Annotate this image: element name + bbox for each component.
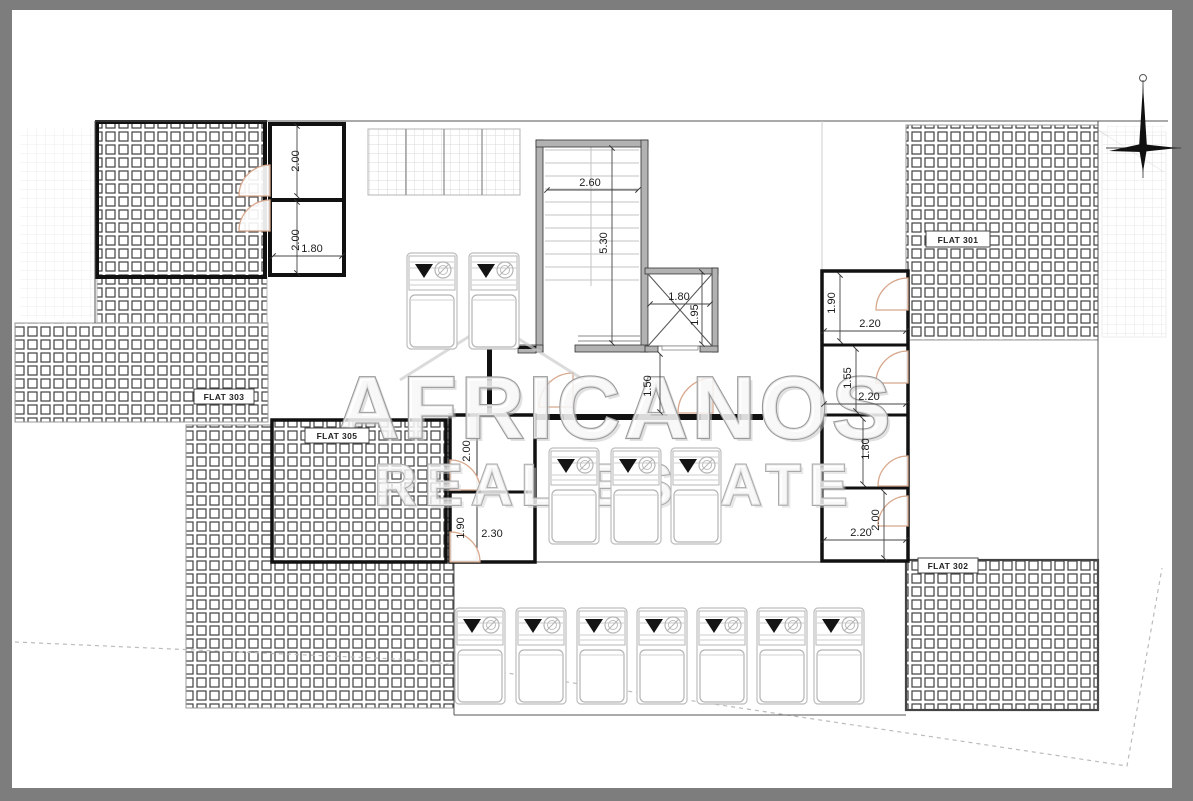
flat-302-label: FLAT 302	[928, 561, 969, 571]
dimension-text: 2.00	[290, 150, 302, 171]
dimension-text: 1.90	[455, 517, 467, 538]
dimension-text: 2.00	[290, 229, 302, 250]
dimension-text: 1.80	[860, 438, 872, 459]
dimension-text: 2.00	[461, 440, 473, 461]
dimension-text: 1.95	[689, 304, 701, 325]
dimension-text: 1.80	[668, 291, 689, 303]
lift-door	[662, 346, 698, 350]
dimension-text: 2.30	[481, 528, 502, 540]
watermark-line1: AFRICANOS	[335, 358, 894, 457]
dimension-text: 1.55	[842, 367, 854, 388]
lift-shaft	[645, 268, 718, 352]
dimension-text: 1.50	[642, 375, 654, 396]
flat-303-label: FLAT 303	[204, 392, 245, 402]
dimension-text: 1.90	[826, 292, 838, 313]
flat303-roof-terrace	[97, 122, 265, 277]
dimension-text: 2.20	[859, 318, 880, 330]
flat-305-label: FLAT 305	[317, 431, 358, 441]
dimension-text: 5.30	[598, 232, 610, 253]
flat-301-label: FLAT 301	[938, 235, 979, 245]
pergola-grid	[368, 129, 520, 195]
light-roof-texture	[20, 128, 94, 318]
dimension-text: 1.80	[301, 243, 322, 255]
dimension-text: 2.00	[870, 509, 882, 530]
dimension-text: 2.20	[858, 391, 879, 403]
floor-plan-page: AFRICANOS AFRICANOS REAL ESTATE REAL EST…	[0, 0, 1193, 801]
floor-plan-drawing: AFRICANOS AFRICANOS REAL ESTATE REAL EST…	[0, 0, 1193, 801]
dimension-text: 2.60	[579, 177, 600, 189]
stair-core	[518, 140, 648, 353]
dimension-text: 2.20	[850, 527, 871, 539]
